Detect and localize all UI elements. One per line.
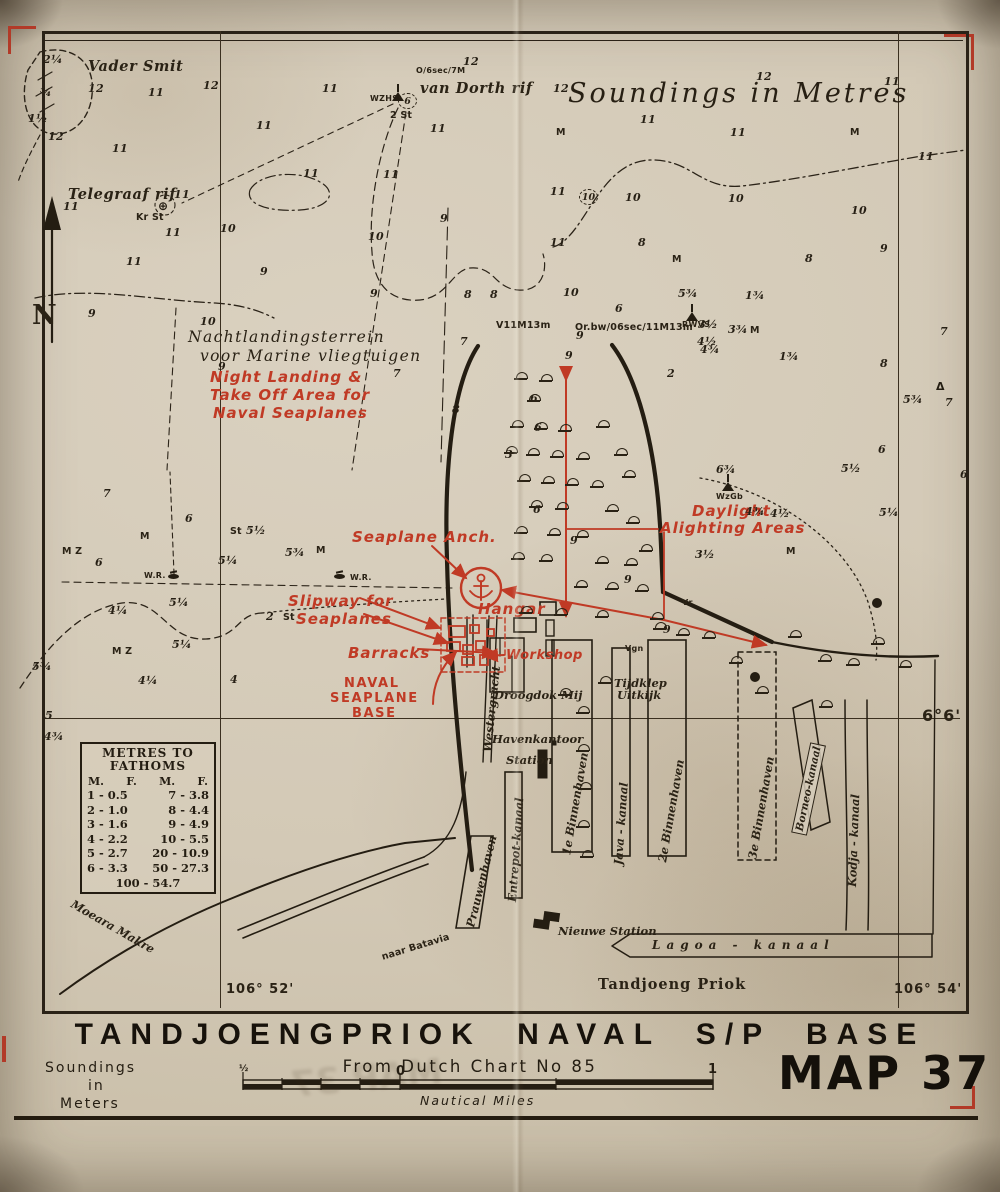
place-label: Lagoa - kanaal [652, 938, 835, 952]
red-annotation: Night Landing & [210, 368, 362, 386]
depth-sounding: 11 [550, 185, 566, 198]
depth-sounding: 9 [370, 287, 378, 300]
red-annotation: Slipway for [288, 592, 394, 610]
table-footer: 100 - 54.7 [82, 875, 214, 890]
seaplane-mooring-symbol [556, 608, 568, 615]
sea-title: Soundings in Metres [568, 78, 909, 109]
depth-sounding: 1½ [28, 112, 48, 125]
seaplane-mooring-symbol [516, 372, 528, 379]
place-label: V11M13m [496, 320, 551, 331]
depth-sounding: 5¾ [903, 393, 923, 406]
depth-sounding: 10 [625, 191, 641, 204]
conversion-value: 6 - 3.3 [87, 861, 128, 876]
red-annotation: NAVAL [344, 676, 400, 691]
place-label: M Z [112, 646, 132, 657]
seaplane-mooring-symbol [678, 628, 690, 635]
dutch-area-label: Nachtlandingsterrein [188, 328, 385, 346]
seaplane-mooring-symbol [731, 656, 743, 663]
seaplane-mooring-symbol [900, 660, 912, 667]
depth-sounding: 2¼ [43, 53, 63, 66]
depth-sounding: 6 [878, 443, 886, 456]
wreck-symbol [334, 574, 345, 579]
chart-source-line: From Dutch Chart No 85 [230, 1057, 710, 1076]
seaplane-mooring-symbol [506, 446, 518, 453]
seaplane-mooring-symbol [541, 374, 553, 381]
depth-sounding: ¾ [40, 86, 52, 99]
depth-sounding: 9 [440, 212, 448, 225]
soundings-note: Meters [60, 1096, 120, 1112]
red-annotation: SEAPLANE [330, 691, 419, 706]
depth-sounding: 5¾ [285, 546, 305, 559]
depth-sounding: 3½ [698, 318, 718, 331]
place-label: Havenkantoor [492, 732, 583, 746]
depth-sounding: 5 [45, 709, 53, 722]
depth-sounding: 6 [95, 556, 103, 569]
depth-sounding: 11 [112, 142, 128, 155]
depth-sounding: 9 [624, 573, 632, 586]
place-label: Vader Smit [88, 58, 183, 75]
place-label: Uitkijk [617, 688, 661, 702]
place-label: St [230, 526, 242, 537]
north-label: N [32, 300, 57, 331]
table-row: 4 - 2.210 - 5.5 [82, 832, 214, 847]
seaplane-mooring-symbol [582, 850, 594, 857]
depth-sounding: 10 [563, 286, 579, 299]
table-rows: 1 - 0.57 - 3.82 - 1.08 - 4.43 - 1.69 - 4… [82, 788, 214, 875]
depth-sounding: 11 [174, 188, 190, 201]
col-header: M. [159, 775, 175, 788]
depth-sounding: 6 [960, 468, 968, 481]
seaplane-mooring-symbol [543, 476, 555, 483]
seaplane-mooring-symbol [567, 478, 579, 485]
depth-sounding: 9 [218, 360, 226, 373]
conversion-value: 7 - 3.8 [168, 788, 209, 803]
red-annotation: Naval Seaplanes [213, 404, 368, 422]
depth-sounding: 11 [730, 126, 746, 139]
seaplane-mooring-symbol [576, 580, 588, 587]
seaplane-mooring-symbol [549, 528, 561, 535]
seaplane-mooring-symbol [624, 470, 636, 477]
depth-sounding: 9 [565, 349, 573, 362]
seaplane-mooring-symbol [513, 552, 525, 559]
depth-sounding: 12 [756, 70, 772, 83]
col-header: M. [88, 775, 104, 788]
seaplane-mooring-symbol [578, 452, 590, 459]
depth-sounding: 8 [452, 403, 460, 416]
nautical-chart-page: Vader SmitTelegraaf rifvan Dorth rifO/6s… [0, 0, 1000, 1192]
depth-sounding: 11 [148, 86, 164, 99]
seaplane-mooring-symbol [578, 706, 590, 713]
seaplane-mooring-symbol [641, 544, 653, 551]
seaplane-mooring-symbol [598, 420, 610, 427]
seaplane-mooring-symbol [528, 448, 540, 455]
seaplane-mooring-symbol [600, 676, 612, 683]
depth-sounding: 8 [805, 252, 813, 265]
depth-sounding: 1¾ [745, 289, 765, 302]
coordinate-label: 106° 52' [226, 982, 294, 997]
beacon-symbol [686, 312, 698, 321]
place-label: M [850, 127, 860, 138]
coordinate-label: 106° 54' [894, 982, 962, 997]
depth-sounding: 11 [383, 168, 399, 181]
conversion-value: 20 - 10.9 [152, 846, 209, 861]
depth-sounding: 10 [200, 315, 216, 328]
seaplane-mooring-symbol [848, 658, 860, 665]
col-header: F. [197, 775, 208, 788]
depth-sounding: 6 [185, 512, 193, 525]
place-label: W.R. [144, 571, 166, 580]
depth-sounding: 11 [126, 255, 142, 268]
conversion-value: 8 - 4.4 [168, 803, 209, 818]
depth-sounding: 8 [490, 288, 498, 301]
depth-sounding: 11 [165, 226, 181, 239]
seaplane-mooring-symbol [552, 450, 564, 457]
delta-symbol: Δ [936, 380, 945, 393]
place-label: M Z [62, 546, 82, 557]
dotr-symbol [750, 672, 760, 682]
depth-sounding: 11 [63, 200, 79, 213]
coordinate-label: 6°6' [922, 706, 961, 725]
seaplane-mooring-symbol [597, 556, 609, 563]
depth-sounding: 7 [460, 335, 468, 348]
seaplane-mooring-symbol [557, 502, 569, 509]
place-label: Tandjoeng Priok [598, 976, 746, 993]
seaplane-mooring-symbol [519, 474, 531, 481]
conversion-value: 5 - 2.7 [87, 846, 128, 861]
conversion-value: 1 - 0.5 [87, 788, 128, 803]
depth-sounding: 10 [728, 192, 744, 205]
depth-sounding: 9 [88, 307, 96, 320]
place-label: M [316, 545, 326, 556]
seaplane-mooring-symbol [597, 610, 609, 617]
col-header: F. [126, 775, 137, 788]
seaplane-mooring-symbol [592, 480, 604, 487]
seaplane-mooring-symbol [512, 420, 524, 427]
conversion-value: 3 - 1.6 [87, 817, 128, 832]
red-annotation: Hangar [478, 600, 546, 618]
depth-sounding: 2 [667, 367, 675, 380]
depth-sounding: 5¼ [218, 554, 238, 567]
depth-sounding: 5½ [841, 462, 861, 475]
depth-sounding: 2 [266, 610, 274, 623]
depth-sounding: 4¾ [745, 505, 765, 518]
red-annotation: Seaplanes [296, 610, 392, 628]
depth-sounding: 12 [88, 82, 104, 95]
place-label: M [672, 254, 682, 265]
soundings-note: in [88, 1078, 105, 1094]
depth-sounding: 4¼ [108, 604, 128, 617]
ring-symbol: ⊕ [158, 199, 168, 213]
depth-sounding: 12 [48, 130, 64, 143]
depth-sounding: 7 [940, 325, 948, 338]
wreck-symbol [168, 574, 179, 579]
conversion-value: 2 - 1.0 [87, 803, 128, 818]
metres-to-fathoms-table: METRES TO FATHOMS M. F. M. F. 1 - 0.57 -… [80, 742, 216, 894]
place-label: Or.bw/06sec/11M13m [575, 322, 693, 333]
place-label: van Dorth rif [420, 80, 533, 97]
seaplane-mooring-symbol [578, 744, 590, 751]
soundings-note: Soundings [45, 1060, 136, 1076]
seaplane-mooring-symbol [655, 622, 667, 629]
seaplane-mooring-symbol [637, 584, 649, 591]
dotr-symbol [872, 598, 882, 608]
chart-linework [0, 0, 1000, 1192]
scale-zero-label: 0 [396, 1064, 405, 1079]
table-title: FATHOMS [82, 760, 214, 773]
place-label: M [140, 531, 150, 542]
seaplane-mooring-symbol [616, 448, 628, 455]
depth-sounding: 5½ [246, 524, 266, 537]
table-row: 3 - 1.69 - 4.9 [82, 817, 214, 832]
depth-sounding: 9 [260, 265, 268, 278]
seaplane-mooring-symbol [578, 820, 590, 827]
depth-sounding: 5¼ [879, 506, 899, 519]
depth-sounding: 7 [945, 396, 953, 409]
scale-units-label: Nautical Miles [420, 1093, 535, 1108]
seaplane-mooring-symbol [757, 686, 769, 693]
place-label: M [750, 325, 760, 336]
depth-sounding: 11 [303, 167, 319, 180]
seaplane-mooring-symbol [607, 504, 619, 511]
depth-sounding: 5¼ [169, 596, 189, 609]
depth-sounding: 10 [851, 204, 867, 217]
place-label: WzGb [716, 492, 743, 501]
red-annotation: Barracks [348, 644, 430, 662]
depth-sounding: 11 [918, 150, 934, 163]
depth-sounding: 5¾ [32, 660, 52, 673]
depth-sounding: 9 [576, 329, 584, 342]
depth-sounding: 11 [430, 122, 446, 135]
beacon-symbol [722, 482, 734, 491]
place-label: M [556, 127, 566, 138]
place-label: 2 St [390, 110, 412, 121]
table-row: 1 - 0.57 - 3.8 [82, 788, 214, 803]
seaplane-mooring-symbol [626, 558, 638, 565]
scale-one-label: 1 [708, 1062, 717, 1077]
place-label: Vgn [625, 644, 644, 653]
depth-sounding: 7 [103, 487, 111, 500]
conversion-value: 10 - 5.5 [160, 832, 209, 847]
conversion-value: 50 - 27.3 [152, 861, 209, 876]
depth-sounding: 11 [322, 82, 338, 95]
seaplane-mooring-symbol [607, 582, 619, 589]
place-label: Nieuwe Station [558, 924, 657, 938]
depth-sounding: 12 [463, 55, 479, 68]
place-label: Vr [682, 598, 693, 607]
depth-sounding: 5¼ [172, 638, 192, 651]
red-annotation: Take Off Area for [210, 386, 370, 404]
circ-symbol: 6 [398, 93, 417, 109]
seaplane-mooring-symbol [560, 424, 572, 431]
depth-sounding: 10 [220, 222, 236, 235]
depth-sounding: 10 [368, 230, 384, 243]
seaplane-mooring-symbol [652, 612, 664, 619]
depth-sounding: 8 [880, 357, 888, 370]
depth-sounding: 3¾ [728, 323, 748, 336]
table-header: M. F. M. F. [82, 773, 214, 788]
place-label: M [786, 546, 796, 557]
place-label: St [283, 612, 295, 623]
depth-sounding: 4¾ [700, 343, 720, 356]
depth-sounding: 4½ [770, 507, 790, 520]
depth-sounding: 7 [393, 367, 401, 380]
place-label: Station [506, 753, 553, 767]
depth-sounding: 8 [464, 288, 472, 301]
seaplane-mooring-symbol [628, 516, 640, 523]
depth-sounding: 8 [638, 236, 646, 249]
depth-sounding: 4 [230, 673, 238, 686]
depth-sounding: 6 [615, 302, 623, 315]
conversion-value: 4 - 2.2 [87, 832, 128, 847]
depth-sounding: 11 [550, 236, 566, 249]
depth-sounding: 3½ [695, 548, 715, 561]
seaplane-mooring-symbol [560, 688, 572, 695]
seaplane-mooring-symbol [580, 782, 592, 789]
seaplane-mooring-symbol [536, 422, 548, 429]
scale-half-label: ½ [239, 1064, 248, 1074]
seaplane-mooring-symbol [704, 631, 716, 638]
table-row: 5 - 2.720 - 10.9 [82, 846, 214, 861]
seaplane-mooring-symbol [790, 630, 802, 637]
depth-sounding: 11 [256, 119, 272, 132]
red-annotation: Seaplane Anch. [352, 528, 497, 546]
table-row: 6 - 3.350 - 27.3 [82, 861, 214, 876]
depth-sounding: 1¾ [779, 350, 799, 363]
seaplane-mooring-symbol [820, 654, 832, 661]
table-row: 2 - 1.08 - 4.4 [82, 803, 214, 818]
seaplane-mooring-symbol [521, 606, 533, 613]
place-label: Kr St [136, 212, 164, 223]
depth-sounding: 5¾ [678, 287, 698, 300]
red-annotation: Workshop [506, 648, 583, 663]
seaplane-mooring-symbol [821, 700, 833, 707]
place-label: O/6sec/7M [416, 66, 465, 75]
seaplane-mooring-symbol [541, 554, 553, 561]
place-label: W.R. [350, 573, 372, 582]
depth-sounding: 4¾ [44, 730, 64, 743]
circ-symbol: 10 [579, 189, 598, 205]
depth-sounding: 9 [880, 242, 888, 255]
depth-sounding: 4¼ [138, 674, 158, 687]
depth-sounding: 12 [203, 79, 219, 92]
seaplane-mooring-symbol [873, 637, 885, 644]
seaplane-mooring-symbol [531, 500, 543, 507]
dutch-area-label: voor Marine vliegtuigen [200, 347, 422, 365]
depth-sounding: 6¾ [716, 463, 736, 476]
seaplane-mooring-symbol [529, 394, 541, 401]
depth-sounding: 11 [640, 113, 656, 126]
red-annotation: BASE [352, 706, 397, 721]
red-annotation: Alighting Areas [660, 519, 806, 537]
depth-sounding: 11 [884, 75, 900, 88]
map-number: MAP 37 [778, 1046, 991, 1100]
seaplane-mooring-symbol [516, 526, 528, 533]
depth-sounding: 12 [553, 82, 569, 95]
conversion-value: 9 - 4.9 [168, 817, 209, 832]
seaplane-mooring-symbol [577, 530, 589, 537]
